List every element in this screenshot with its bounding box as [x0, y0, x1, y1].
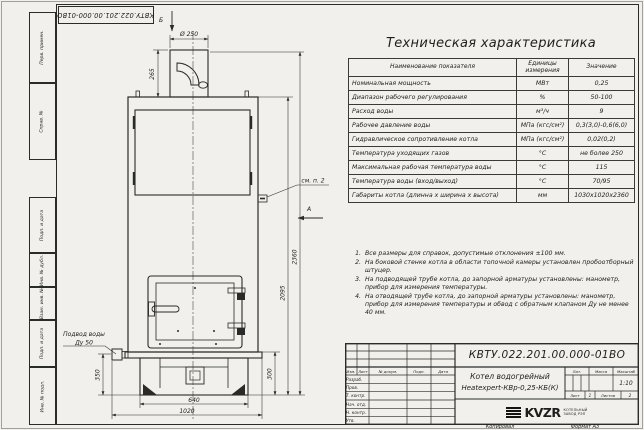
upper-door-hinge: [250, 116, 253, 129]
spec-cell-name: Диапазон рабочего регулирования: [349, 91, 517, 105]
drawing-sheet: Перв. примен. Справ. № Подп. и дата Инв.…: [0, 0, 644, 430]
kvzr-logo-subtitle: КОТЕЛЬНЫЙ ЗАВОД РЭП: [564, 408, 588, 417]
note-text: На отводящей трубе котла, до запорной ар…: [365, 293, 635, 317]
sheet-value: 1: [585, 391, 595, 399]
row-label-nachotd: Нач. отд.: [346, 400, 368, 408]
dim-2360: 2360: [292, 249, 299, 264]
margin-box-vzam-inv: Взам. инв. №: [29, 287, 56, 320]
door-handle-mount: [149, 302, 155, 316]
dim-640: 640: [188, 397, 200, 404]
mass-label: Масса: [589, 367, 613, 375]
margin-label: Перв. примен.: [40, 30, 45, 65]
door-bolt: [194, 287, 196, 289]
margin-label: Подп. и дата: [40, 328, 45, 359]
kvzr-logo-icon: [506, 407, 521, 418]
dim-300: 300: [267, 368, 274, 380]
col-header-izm: Изм.: [345, 367, 357, 375]
spec-row: Рабочее давление водыМПа (кгс/см²)0,3(3,…: [349, 119, 635, 133]
spec-row: Температура уходящих газов°Сне более 250: [349, 147, 635, 161]
callout-leader: [267, 185, 329, 197]
spec-cell-name: Габариты котла (длинна х ширина х высота…: [349, 189, 517, 203]
col-header-podp: Подп.: [407, 367, 431, 375]
water-supply-label-1: Подвод воды: [63, 331, 105, 338]
spec-row: Номинальная мощностьМВт0,25: [349, 77, 635, 91]
dim-1020: 1020: [179, 408, 194, 415]
spec-table-title: Техническая характеристика: [348, 36, 634, 51]
note-text: На боковой стенке котла в области топочн…: [365, 259, 635, 275]
spec-cell-value: 0,25: [569, 77, 635, 91]
base-gusset-left: [143, 384, 157, 395]
note-number: 1.: [352, 250, 361, 258]
row-label-utv: Утв.: [346, 417, 368, 425]
body-stud-right: [245, 91, 249, 97]
spec-cell-value: 50-100: [569, 91, 635, 105]
spec-cell-name: Рабочее давление воды: [349, 119, 517, 133]
body-stud-left: [136, 91, 140, 97]
spec-header-name: Наименование показателя: [349, 59, 517, 77]
flue-elbow-knob: [199, 82, 208, 88]
kvzr-logo-subtitle-line2: ЗАВОД РЭП: [564, 412, 588, 416]
copied-label: Копировал: [455, 424, 545, 430]
col-header-dokum: № докум.: [369, 367, 407, 375]
lower-door-inner: [156, 283, 234, 340]
spec-row: Габариты котла (длинна х ширина х высота…: [349, 189, 635, 203]
doc-number: КВТУ.022.201.00.000-01ВО: [455, 343, 639, 367]
col-header-data: Дата: [431, 367, 455, 375]
flue-elbow: [177, 63, 199, 85]
dim-d250: Ø 250: [179, 31, 198, 38]
upper-door-hinge: [133, 172, 136, 185]
row-label-prov: Пров.: [346, 383, 368, 391]
spec-cell-value: 9: [569, 105, 635, 119]
base-center-box: [186, 367, 204, 384]
spec-cell-value: 70/95: [569, 175, 635, 189]
spec-cell-name: Температура воды (вход/выход): [349, 175, 517, 189]
water-callout-leader: [63, 346, 116, 354]
row-label-nkontr: Н. контр.: [346, 408, 368, 416]
margin-box-perv-primen: Перв. примен.: [29, 12, 56, 83]
door-bolt: [159, 343, 161, 345]
water-pipe-flange: [112, 349, 122, 360]
margin-box-podp-data-2: Подп. и дата: [29, 320, 56, 367]
company-logo: KVZR КОТЕЛЬНЫЙ ЗАВОД РЭП: [455, 400, 639, 424]
door-bolt: [215, 343, 217, 345]
spec-cell-name: Температура уходящих газов: [349, 147, 517, 161]
spec-cell-units: мм: [517, 189, 569, 203]
spec-cell-units: °С: [517, 147, 569, 161]
spec-header-units: Единицы измерения: [517, 59, 569, 77]
spec-header-value: Значение: [569, 59, 635, 77]
margin-label: Справ. №: [40, 110, 45, 132]
spec-cell-units: МПа (кгс/см²): [517, 119, 569, 133]
base-gusset-right: [231, 384, 245, 395]
spec-cell-value: 0,3(3,0)-0,6(6,0): [569, 119, 635, 133]
door-bolt: [177, 330, 179, 332]
col-header-list: Лист: [357, 367, 369, 375]
note-item: 1.Все размеры для справок, допустимые от…: [352, 250, 635, 258]
water-supply-label-2: Ду 50: [74, 340, 93, 347]
spec-row: Гидравлическое сопротивление котлаМПа (к…: [349, 133, 635, 147]
notes-list: 1.Все размеры для справок, допустимые от…: [352, 250, 635, 319]
spec-row: Расход водым³/ч9: [349, 105, 635, 119]
note-number: 4.: [352, 293, 361, 317]
spec-cell-units: МПа (кгс/см²): [517, 133, 569, 147]
spec-cell-name: Максимальная рабочая температура воды: [349, 161, 517, 175]
dim-265: 265: [149, 68, 156, 80]
note-item: 4.На отводящей трубе котла, до запорной …: [352, 293, 635, 317]
spec-cell-value: не более 250: [569, 147, 635, 161]
base-opening: [160, 358, 228, 388]
upper-door-hinge: [133, 116, 136, 129]
chimney: [170, 50, 208, 97]
note-item: 2.На боковой стенке котла в области топо…: [352, 259, 635, 275]
dim-2095: 2095: [280, 285, 287, 300]
margin-box-inv-podl: Инв. № подл.: [29, 367, 56, 425]
spec-cell-units: °С: [517, 175, 569, 189]
spec-cell-value: 0,02(0,2): [569, 133, 635, 147]
spec-row: Диапазон рабочего регулирования%50-100: [349, 91, 635, 105]
note-number: 3.: [352, 276, 361, 292]
format-label: Формат А3: [545, 424, 625, 430]
boiler-front-view: Б Ø 250 265 см. п. 2 А: [57, 5, 347, 425]
scale-label: Масштаб: [613, 367, 639, 375]
note-text: Все размеры для справок, допустимые откл…: [365, 250, 566, 258]
note-item: 3.На подводящей трубе котла, до запорной…: [352, 276, 635, 292]
margin-label: Инв. № подл.: [40, 380, 45, 412]
door-bolt: [213, 330, 215, 332]
margin-label: Подп. и дата: [40, 209, 45, 240]
note-number: 2.: [352, 259, 361, 275]
view-b-label: Б: [159, 17, 163, 24]
spec-row: Максимальная рабочая температура воды°С1…: [349, 161, 635, 175]
margin-box-podp-data-1: Подп. и дата: [29, 197, 56, 253]
kvzr-logo-text: KVZR: [524, 405, 560, 420]
sheets-label: Листов: [595, 391, 621, 399]
spec-cell-name: Гидравлическое сопротивление котла: [349, 133, 517, 147]
spec-cell-value: 115: [569, 161, 635, 175]
margin-label: Инв. № дубл.: [40, 254, 45, 285]
spec-cell-name: Номинальная мощность: [349, 77, 517, 91]
upper-door-hinge: [250, 172, 253, 185]
spec-cell-units: %: [517, 91, 569, 105]
callout-see-note: см. п. 2: [301, 178, 324, 185]
spec-cell-name: Расход воды: [349, 105, 517, 119]
product-name-line2: Heatexpert-КВр-0,25-КБ(К): [453, 381, 567, 394]
upper-door: [135, 110, 250, 195]
spec-row: Температура воды (вход/выход)°С70/95: [349, 175, 635, 189]
base-center-box-inner: [190, 371, 200, 380]
lit-label: Лит.: [565, 367, 589, 375]
base-box: [140, 358, 248, 395]
view-a-label: А: [306, 206, 311, 213]
dim-350: 350: [95, 369, 102, 381]
sheets-value: 2: [621, 391, 639, 399]
spec-cell-value: 1030х1020х2360: [569, 189, 635, 203]
spec-table: Наименование показателя Единицы измерени…: [348, 58, 635, 203]
spec-cell-units: °С: [517, 161, 569, 175]
margin-box-inv-dubl: Инв. № дубл.: [29, 253, 56, 287]
spec-cell-units: МВт: [517, 77, 569, 91]
row-label-tkontr: Т. контр.: [346, 392, 368, 400]
note-text: На подводящей трубе котла, до запорной а…: [365, 276, 635, 292]
title-block: КВТУ.022.201.00.000-01ВО Котел водогрейн…: [345, 343, 639, 425]
sheet-label: Лист: [565, 391, 585, 399]
margin-box-sprav-no: Справ. №: [29, 83, 56, 160]
scale-value: 1:10: [613, 375, 639, 391]
spec-header-row: Наименование показателя Единицы измерени…: [349, 59, 635, 77]
margin-label: Взам. инв. №: [40, 288, 45, 319]
bottom-plate: [125, 352, 262, 358]
row-label-razrab: Разраб.: [346, 375, 368, 383]
spec-cell-units: м³/ч: [517, 105, 569, 119]
